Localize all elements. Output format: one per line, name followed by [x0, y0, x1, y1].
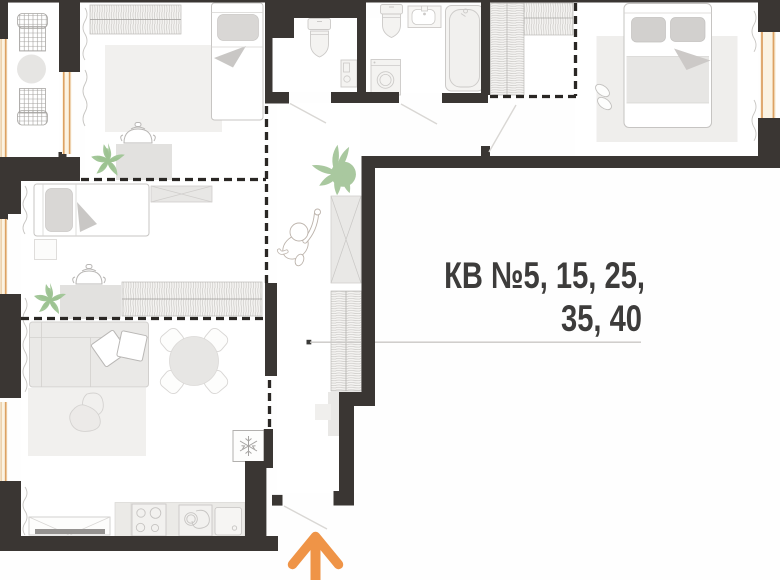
svg-text:35, 40: 35, 40	[561, 299, 642, 340]
svg-text:КВ №5, 15, 25,: КВ №5, 15, 25,	[444, 256, 645, 297]
